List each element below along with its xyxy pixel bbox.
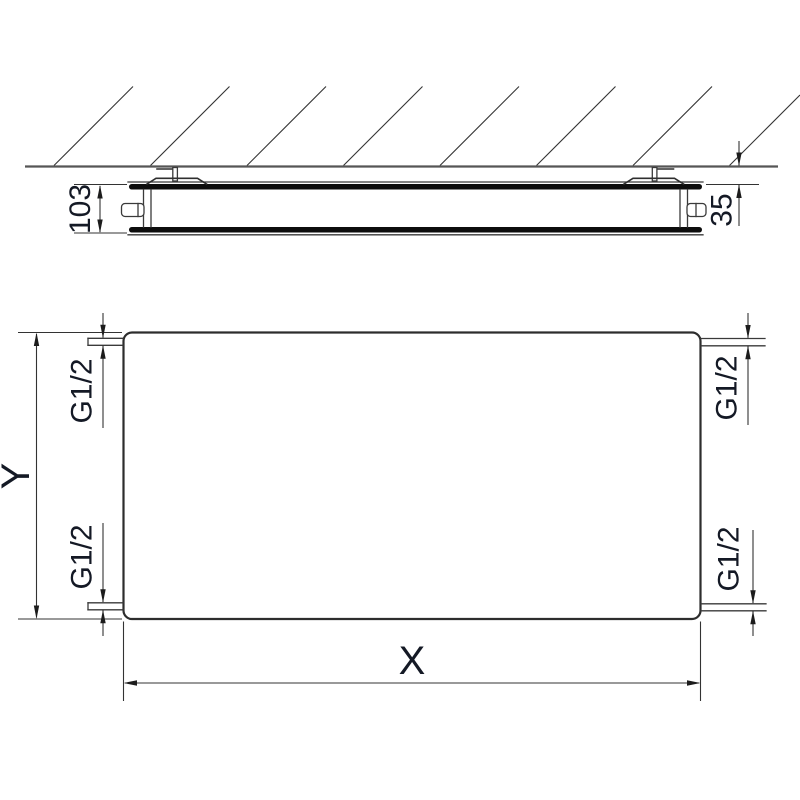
radiator-dimension-drawing: 103 35 bbox=[0, 0, 800, 800]
arrow-down bbox=[750, 590, 755, 604]
dimension-connection-top-left: G1/2 bbox=[66, 313, 106, 428]
dimension-connection-bottom-right: G1/2 bbox=[713, 526, 756, 636]
dimension-width: X bbox=[124, 622, 701, 702]
hatch-line bbox=[151, 87, 230, 166]
arrow-left bbox=[124, 680, 138, 685]
dimension-connection-top-right: G1/2 bbox=[711, 313, 751, 425]
arrow-down bbox=[100, 325, 105, 339]
hatch-line bbox=[344, 87, 423, 166]
arrow-right bbox=[687, 680, 701, 685]
arrow-down bbox=[736, 153, 741, 167]
connection-thread-label: G1/2 bbox=[66, 358, 99, 423]
arrow-down bbox=[34, 606, 39, 620]
radiator-back-panel-band bbox=[129, 184, 702, 190]
connection-stub-top-left bbox=[88, 338, 123, 345]
connection-thread-label: G1/2 bbox=[711, 355, 744, 420]
connection-thread-label: G1/2 bbox=[713, 526, 746, 591]
arrow-down bbox=[745, 325, 750, 339]
height-dimension-label: Y bbox=[0, 463, 38, 490]
radiator-front-face bbox=[124, 333, 701, 620]
radiator-profile bbox=[122, 182, 707, 235]
connection-thread-label: G1/2 bbox=[66, 524, 99, 589]
wall-distance-dimension-label: 35 bbox=[706, 193, 739, 226]
connection-stub-top-right bbox=[701, 339, 765, 346]
arrow-down bbox=[100, 589, 105, 603]
dimension-height: Y bbox=[0, 333, 122, 620]
arrow-up bbox=[750, 611, 755, 625]
side-view: 103 35 bbox=[25, 87, 800, 235]
arrow-up bbox=[100, 610, 105, 624]
depth-dimension-label: 103 bbox=[64, 184, 97, 234]
width-dimension-label: X bbox=[399, 639, 426, 683]
arrow-up bbox=[34, 333, 39, 347]
hatch-line bbox=[537, 87, 616, 166]
connection-stub-bottom-left bbox=[88, 603, 123, 610]
connection-stub-bottom-right bbox=[701, 604, 766, 611]
arrow-up bbox=[100, 345, 105, 359]
dimension-depth: 103 bbox=[64, 184, 127, 234]
arrow-up bbox=[97, 185, 102, 199]
hatch-line bbox=[633, 87, 712, 166]
dimension-wall-distance: 35 bbox=[706, 141, 760, 227]
radiator-front-panel-band bbox=[129, 227, 702, 233]
front-view: Y X G1/2 G1/2 bbox=[0, 313, 766, 701]
hatch-line bbox=[440, 87, 519, 166]
technical-drawing-page: 103 35 bbox=[0, 0, 800, 800]
hatch-line bbox=[247, 87, 326, 166]
arrow-up bbox=[745, 346, 750, 360]
wall-hatching bbox=[54, 87, 800, 166]
arrow-down bbox=[97, 220, 102, 234]
connection-stub-left bbox=[122, 204, 145, 217]
hatch-line bbox=[54, 87, 133, 166]
